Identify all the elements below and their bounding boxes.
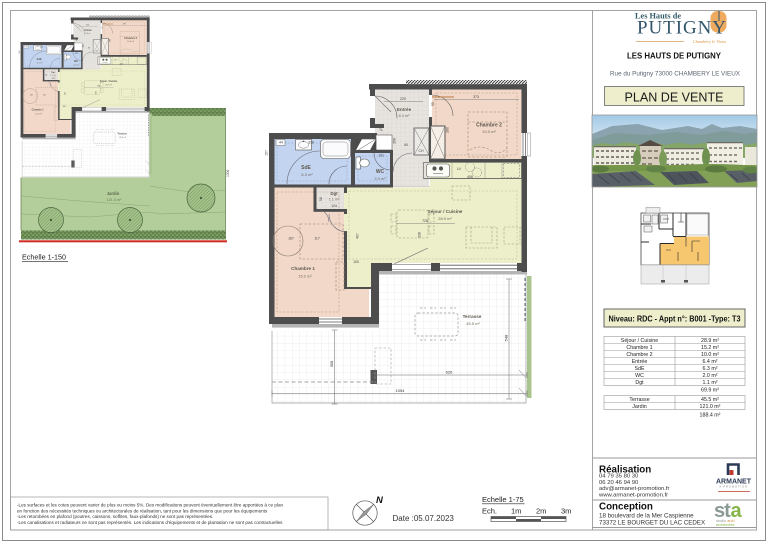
svg-text:Chambéry le Vieux: Chambéry le Vieux: [693, 39, 726, 44]
svg-text:28.9 m²: 28.9 m²: [701, 338, 719, 344]
svg-text:-Les surfaces et les cotes peu: -Les surfaces et les cotes peuvent varie…: [17, 503, 284, 508]
svg-text:Echelle 1-75: Echelle 1-75: [482, 495, 524, 504]
svg-text:1.1 m²: 1.1 m²: [702, 380, 717, 386]
svg-text:Dgt: Dgt: [635, 380, 644, 386]
svg-text:A PROMOTION: A PROMOTION: [719, 485, 748, 489]
svg-text:Chambre 2: Chambre 2: [626, 352, 652, 358]
svg-text:PLAN DE VENTE: PLAN DE VENTE: [625, 90, 724, 105]
svg-text:121.0 m²: 121.0 m²: [107, 198, 123, 202]
svg-text:N: N: [376, 495, 384, 506]
svg-text:en fonction des nécessités tec: en fonction des nécessités techniques ou…: [17, 508, 268, 513]
svg-text:Echelle 1-150: Echelle 1-150: [22, 253, 66, 262]
svg-text:Niveau: RDC - Appt n°: B001 -T: Niveau: RDC - Appt n°: B001 -Type: T3: [609, 315, 741, 324]
svg-text:PUTIGNY: PUTIGNY: [637, 18, 726, 39]
svg-text:architectes: architectes: [716, 523, 734, 527]
svg-text:www.armanet-promotion.fr: www.armanet-promotion.fr: [598, 492, 668, 498]
svg-text:04 79 35 80 30: 04 79 35 80 30: [599, 474, 639, 480]
svg-text:Terrasse: Terrasse: [629, 397, 649, 403]
svg-text:73372 LE BOURGET DU LAC CEDEX: 73372 LE BOURGET DU LAC CEDEX: [599, 519, 705, 526]
svg-text:188.4 m²: 188.4 m²: [700, 413, 721, 419]
svg-text:121.0 m²: 121.0 m²: [700, 404, 721, 410]
svg-text:studio arch: studio arch: [716, 519, 735, 523]
svg-text:2m: 2m: [536, 507, 546, 516]
svg-text:Date :05.07.2023: Date :05.07.2023: [393, 514, 455, 523]
svg-text:1m: 1m: [511, 507, 521, 516]
svg-text:548: 548: [504, 334, 509, 341]
svg-text:-Les retombées en plafond (pou: -Les retombées en plafond (poutres, cais…: [17, 514, 213, 519]
svg-text:10.0 m²: 10.0 m²: [701, 352, 719, 358]
svg-text:Rue du Putigny 73000 CHAMBERY: Rue du Putigny 73000 CHAMBERY LE VIEUX: [610, 71, 741, 78]
svg-text:-Les canalisations et radiateu: -Les canalisations et radiateurs ne sont…: [17, 520, 283, 525]
svg-text:Chambre 1: Chambre 1: [626, 345, 652, 351]
svg-text:1006: 1006: [226, 169, 230, 177]
svg-text:Jardin: Jardin: [632, 404, 646, 410]
svg-text:358: 358: [329, 360, 334, 367]
svg-text:06 20 46 94 90: 06 20 46 94 90: [599, 480, 639, 486]
svg-text:45.5 m²: 45.5 m²: [701, 397, 719, 403]
svg-text:1054: 1054: [396, 388, 406, 393]
svg-text:Jardin: Jardin: [107, 191, 120, 196]
svg-text:15.2 m²: 15.2 m²: [701, 345, 719, 351]
svg-text:2.0 m²: 2.0 m²: [702, 373, 717, 379]
svg-text:6.3 m²: 6.3 m²: [702, 366, 717, 372]
svg-text:LES HAUTS DE PUTIGNY: LES HAUTS DE PUTIGNY: [627, 52, 722, 61]
svg-text:6.4 m²: 6.4 m²: [702, 359, 717, 365]
svg-text:Ech.: Ech.: [482, 507, 497, 516]
svg-text:WC: WC: [635, 373, 644, 379]
svg-text:adv@armanet-promotion.fr: adv@armanet-promotion.fr: [599, 486, 670, 492]
svg-text:Entrée: Entrée: [632, 359, 648, 365]
svg-text:69.9 m²: 69.9 m²: [701, 388, 719, 394]
svg-text:3m: 3m: [561, 507, 571, 516]
svg-text:Séjour / Cuisine: Séjour / Cuisine: [621, 338, 658, 344]
svg-text:SdE: SdE: [634, 366, 644, 372]
svg-text:Conception: Conception: [599, 502, 653, 513]
svg-text:626: 626: [446, 370, 453, 375]
